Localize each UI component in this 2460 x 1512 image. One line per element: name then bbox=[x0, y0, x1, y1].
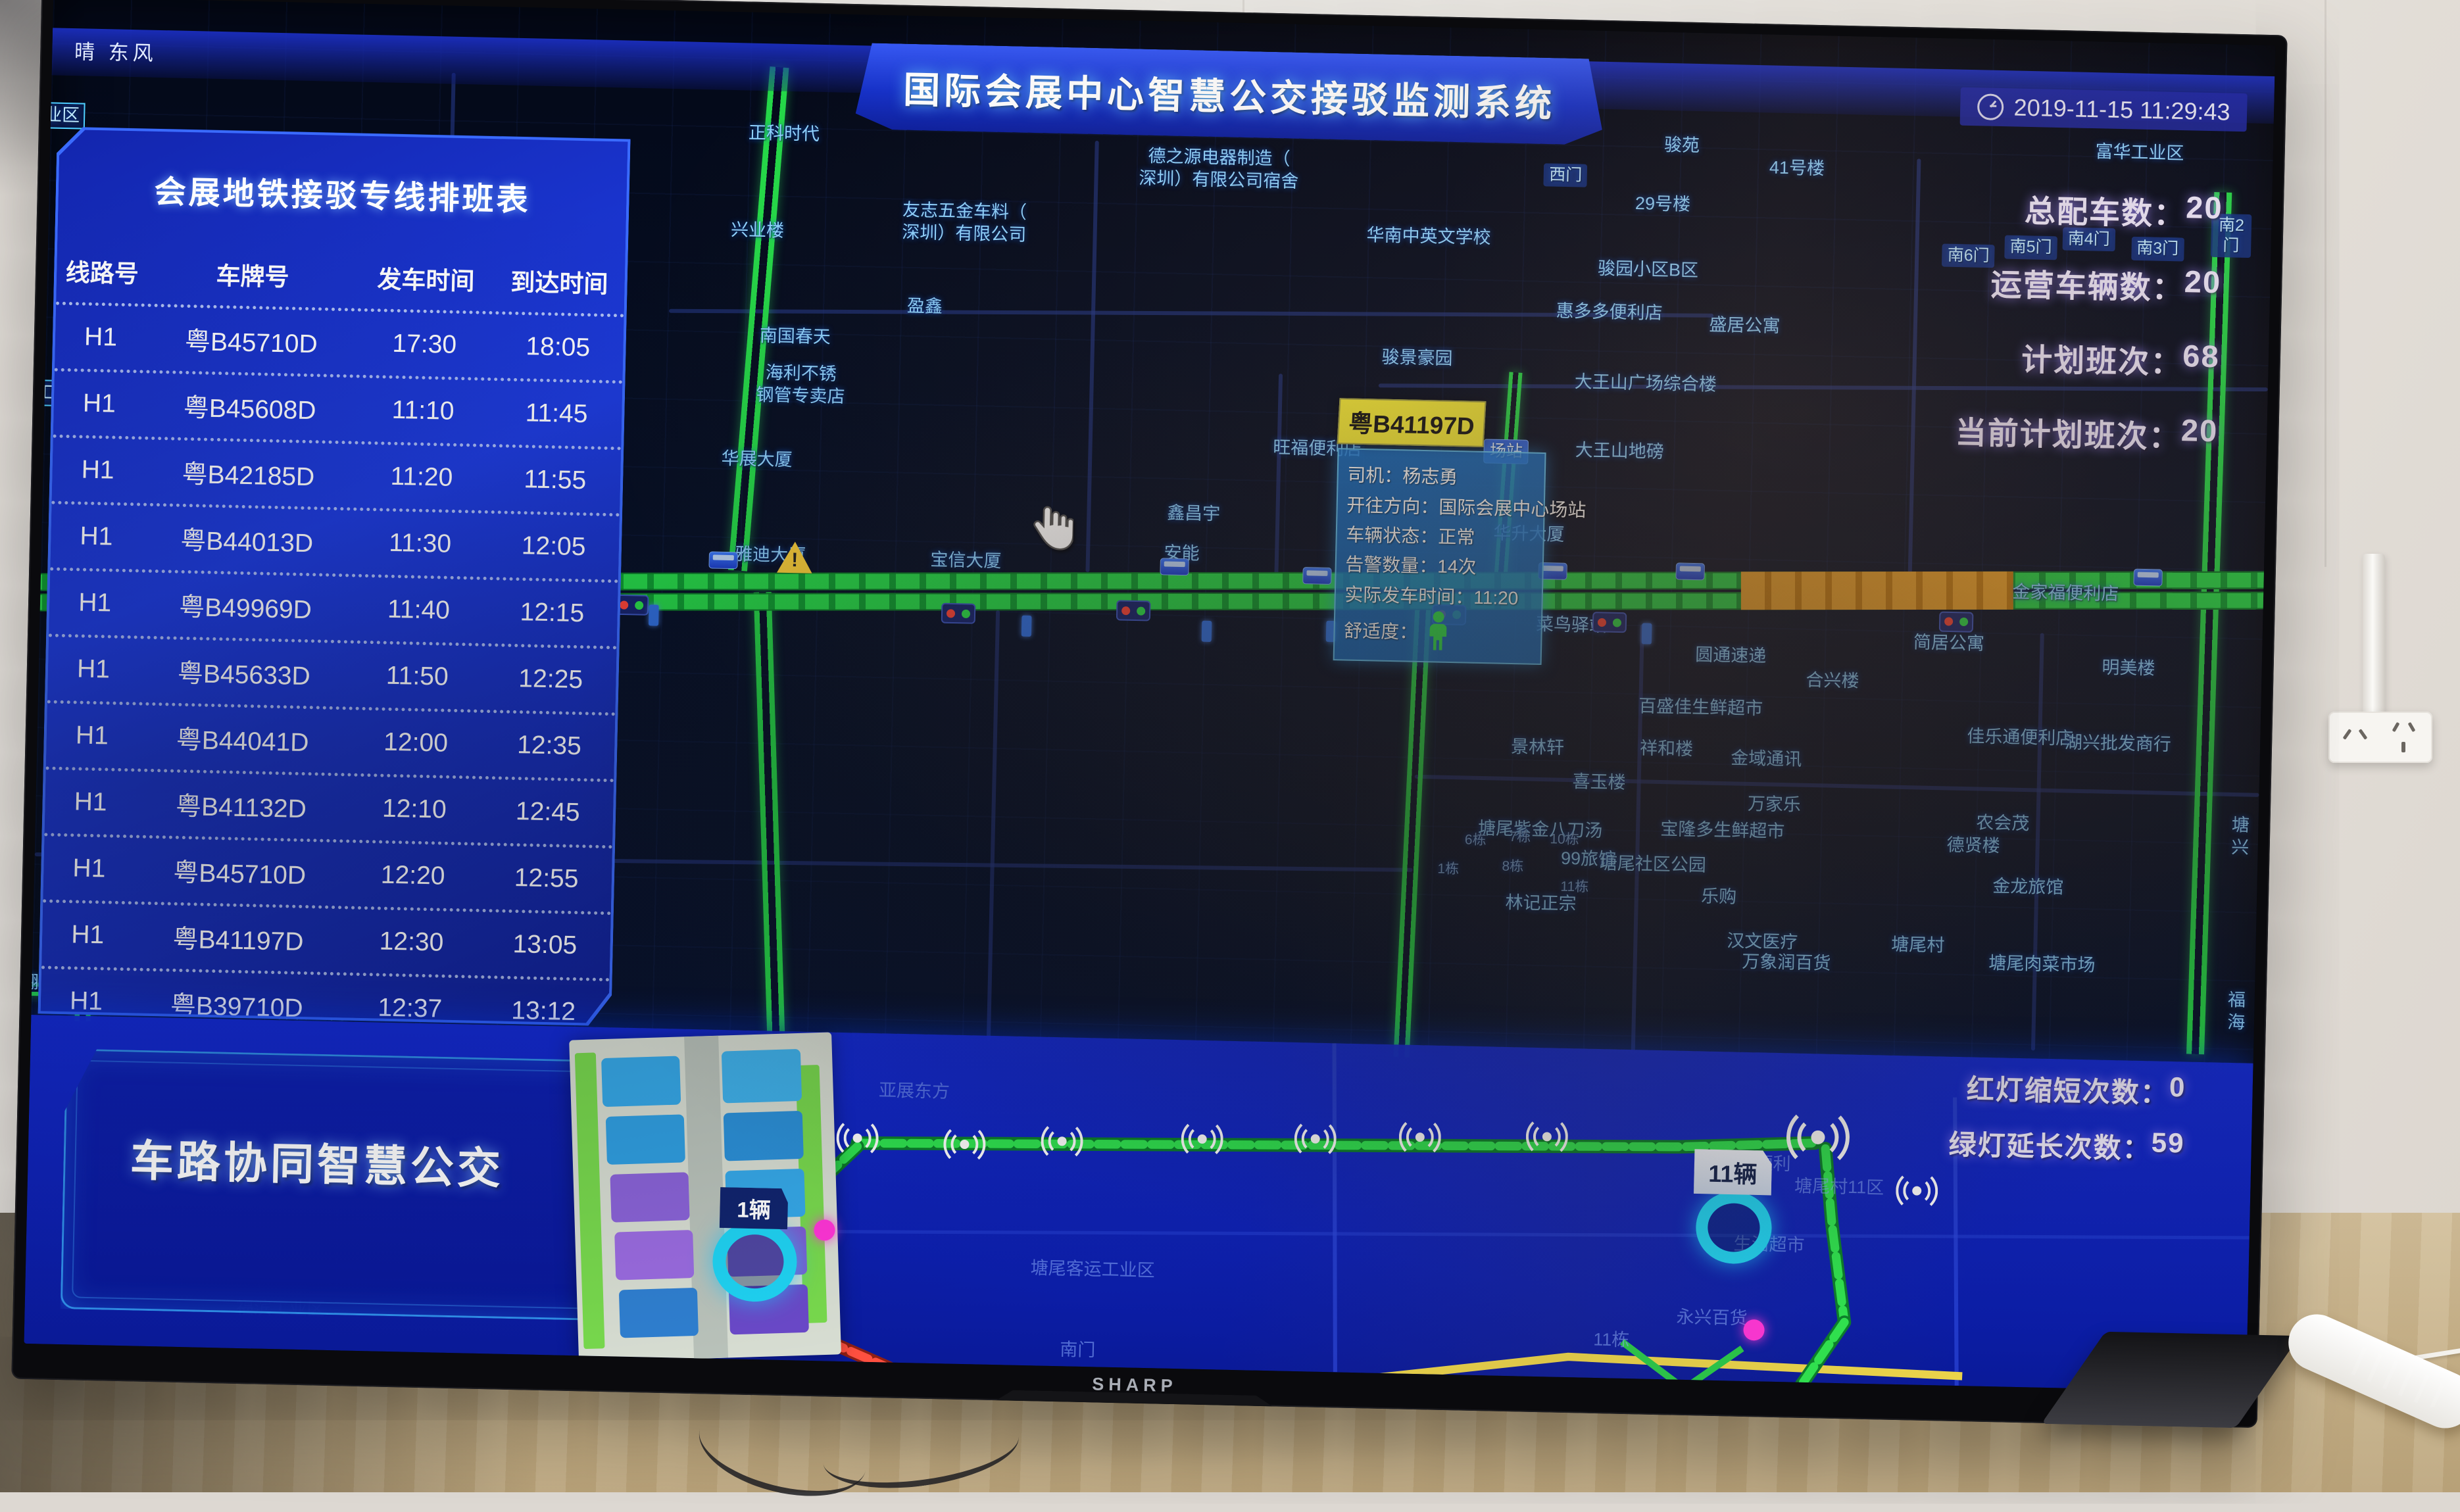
map-label: 万象润百货 bbox=[1742, 951, 1831, 975]
map-label: 福海 bbox=[2227, 990, 2246, 1035]
departure-cell: 12:20 bbox=[345, 860, 481, 892]
line-cell: H1 bbox=[42, 919, 134, 950]
map-label: 德贤楼 bbox=[1946, 834, 2000, 858]
table-row: H1 粤B49969D 11:40 12:15 bbox=[49, 570, 618, 649]
table-row: H1 粤B41132D 12:10 12:45 bbox=[44, 769, 614, 848]
map-label: 大王山广场综合楼 bbox=[1574, 371, 1717, 396]
stat-line: 计划班次：68 bbox=[1957, 333, 2221, 384]
arrival-cell: 18:05 bbox=[492, 331, 624, 363]
popup-value: 正常 bbox=[1438, 527, 1475, 548]
map-label: 29号楼 bbox=[1635, 193, 1691, 216]
map-label: 农会茂 bbox=[1976, 812, 2030, 836]
v2x-label-layer: 亚展东方吉叶便利塘尾村11区生活超市塘尾客运工业区永兴百货南门11栋 bbox=[24, 1015, 2253, 1392]
tv-frame: 业区正科时代友志五金车料（ 深圳）有限公司德之源电器制造（ 深圳）有限公司宿舍华… bbox=[11, 0, 2287, 1428]
popup-label: 舒适度 bbox=[1344, 621, 1400, 643]
map-label: 41号楼 bbox=[1769, 157, 1825, 180]
map-label: 德之源电器制造（ 深圳）有限公司宿舍 bbox=[1139, 145, 1299, 193]
map-label: 骏景豪园 bbox=[1381, 347, 1453, 370]
map-label: 6栋 bbox=[1465, 831, 1487, 849]
stat-line: 红灯缩短次数：0 bbox=[1950, 1067, 2186, 1112]
map-label: 大王山地磅 bbox=[1575, 439, 1664, 464]
map-label: 万家乐 bbox=[1747, 793, 1801, 817]
table-row: H1 粤B45710D 17:30 18:05 bbox=[55, 305, 624, 383]
map-label: 8栋 bbox=[1502, 858, 1523, 875]
col-plate: 车牌号 bbox=[147, 254, 358, 294]
table-row: H1 粤B42185D 11:20 11:55 bbox=[51, 437, 621, 516]
departure-cell: 12:10 bbox=[346, 793, 483, 825]
departure-cell: 12:30 bbox=[343, 926, 480, 958]
arrival-cell: 13:12 bbox=[478, 995, 609, 1023]
arrival-cell: 13:05 bbox=[480, 929, 611, 960]
table-row: H1 粤B45633D 11:50 12:25 bbox=[47, 637, 617, 716]
line-cell: H1 bbox=[48, 654, 139, 685]
map-label: 喜玉楼 bbox=[1572, 771, 1626, 794]
map-label: 乐购 bbox=[1701, 885, 1737, 908]
plate-badge[interactable]: 粤B41197D bbox=[1337, 398, 1486, 447]
map-label: 金家福便利店 bbox=[2012, 581, 2119, 605]
map-label: 塘尾社区公园 bbox=[1600, 852, 1707, 877]
map-label: 塘尾村11区 bbox=[1794, 1171, 1884, 1199]
map-label: 简居公寓 bbox=[1913, 631, 1985, 655]
plate-cell: 粤B45608D bbox=[144, 386, 355, 427]
map-label: 兴业楼 bbox=[731, 219, 785, 243]
map-label: 菜鸟驿站 bbox=[1536, 614, 1608, 637]
table-row: H1 粤B45710D 12:20 12:55 bbox=[43, 836, 612, 915]
col-arrival: 到达时间 bbox=[494, 262, 626, 300]
popup-row: 司机：杨志勇 bbox=[1347, 460, 1536, 495]
plate-cell: 粤B41132D bbox=[135, 785, 347, 826]
map-label: 1栋 bbox=[1437, 860, 1459, 878]
schedule-body: H1 粤B45710D 17:30 18:05 H1 粤B45608D 11:1… bbox=[41, 305, 624, 1023]
map-label: 合兴楼 bbox=[1806, 670, 1859, 693]
map-label: 惠多多便利店 bbox=[1556, 301, 1663, 325]
departure-cell: 11:30 bbox=[352, 527, 489, 560]
map-label: 湖兴批发商行 bbox=[2065, 731, 2172, 756]
departure-cell: 11:50 bbox=[349, 660, 485, 693]
plate-cell: 粤B45633D bbox=[139, 652, 350, 693]
popup-row: 开往方向：国际会展中心场站 bbox=[1346, 490, 1535, 524]
power-outlet bbox=[2328, 712, 2432, 763]
arrival-cell: 12:45 bbox=[482, 796, 614, 828]
map-label: 亚展东方 bbox=[879, 1076, 950, 1103]
map-label: 10栋 bbox=[1550, 831, 1579, 848]
timestamp: 2019-11-15 11:29:43 bbox=[1959, 87, 2248, 132]
popup-row: 车辆状态：正常 bbox=[1346, 520, 1535, 554]
stat-line: 绿灯延长次数：59 bbox=[1948, 1123, 2185, 1168]
stat-label: 总配车数 bbox=[2025, 185, 2154, 233]
plate-cell: 粤B49969D bbox=[140, 585, 351, 627]
map-label: 华展大厦 bbox=[721, 448, 793, 472]
line-cell: H1 bbox=[45, 787, 136, 817]
map-label: 佳乐通便利店 bbox=[1967, 725, 2074, 750]
map-label: 祥和楼 bbox=[1640, 737, 1694, 761]
hand-cursor-icon bbox=[1031, 503, 1074, 553]
popup-value: 11:20 bbox=[1473, 587, 1519, 608]
departure-cell: 11:20 bbox=[353, 461, 490, 493]
stat-value: 68 bbox=[2182, 337, 2221, 383]
popup-label: 实际发车时间 bbox=[1344, 584, 1456, 607]
popup-label: 司机 bbox=[1347, 465, 1385, 486]
arrival-cell: 12:25 bbox=[485, 664, 616, 695]
map-label: 骏苑 bbox=[1664, 134, 1700, 157]
stat-line: 运营车辆数：20 bbox=[1958, 258, 2222, 310]
map-label: 景林轩 bbox=[1511, 736, 1565, 760]
datetime-value: 2019-11-15 11:29:43 bbox=[2013, 93, 2230, 126]
line-cell: H1 bbox=[52, 454, 143, 485]
plate-cell: 粤B44013D bbox=[141, 519, 353, 560]
map-label: 雅迪大厦 bbox=[735, 544, 806, 568]
table-row: H1 粤B44013D 11:30 12:05 bbox=[50, 504, 620, 583]
departure-cell: 11:10 bbox=[355, 395, 491, 427]
line-cell: H1 bbox=[49, 587, 141, 618]
stat-value: 20 bbox=[2185, 189, 2223, 235]
schedule-title: 会展地铁接驳专线排班表 bbox=[58, 163, 627, 222]
arrival-cell: 11:45 bbox=[491, 398, 622, 429]
popup-row: 舒适度： bbox=[1344, 610, 1533, 653]
map-label: 塘尾客运工业区 bbox=[1030, 1253, 1155, 1281]
map-label: 海利不锈 钢管专卖店 bbox=[756, 362, 845, 408]
plate-cell: 粤B45710D bbox=[134, 851, 345, 892]
map-label: 塘尾村 bbox=[1891, 934, 1945, 958]
col-line: 线路号 bbox=[57, 252, 148, 289]
plate-cell: 粤B44041D bbox=[137, 718, 348, 760]
popup-value: 14次 bbox=[1437, 556, 1477, 577]
page-title: 国际会展中心智慧公交接驳监测系统 bbox=[902, 61, 1556, 128]
map-label: 友志五金车料（ 深圳）有限公司 bbox=[902, 199, 1027, 247]
cable-conduit bbox=[2363, 554, 2385, 730]
plate-cell: 粤B41197D bbox=[133, 917, 344, 959]
popup-label: 开往方向 bbox=[1346, 495, 1421, 516]
map-label: 安能 bbox=[1164, 543, 1200, 566]
departure-cell: 11:40 bbox=[350, 594, 487, 626]
line-cell: H1 bbox=[41, 986, 132, 1017]
arrival-cell: 12:55 bbox=[481, 862, 612, 894]
popup-row: 实际发车时间：11:20 bbox=[1344, 579, 1533, 614]
popup-value: 国际会展中心场站 bbox=[1439, 497, 1587, 520]
monitoring-dashboard-screen: 业区正科时代友志五金车料（ 深圳）有限公司德之源电器制造（ 深圳）有限公司宿舍华… bbox=[24, 0, 2275, 1392]
table-row: H1 粤B45608D 11:10 11:45 bbox=[53, 371, 623, 450]
map-label: 林记正宗 bbox=[1505, 892, 1577, 915]
stat-label: 绿灯延长次数 bbox=[1948, 1123, 2123, 1167]
clock-icon bbox=[1977, 93, 2004, 120]
map-label: 南国春天 bbox=[760, 325, 831, 349]
map-label: 华南中英文学校 bbox=[1366, 225, 1491, 250]
wall-seam bbox=[2325, 0, 2326, 567]
vehicle-info-popup[interactable]: 粤B41197D 司机：杨志勇 开往方向：国际会展中心场站 车辆状态：正常 告警… bbox=[1333, 398, 1547, 665]
v2x-panel: 车路协同智慧公交 亚展东方吉叶便利塘尾村11区生活超市塘尾客运工业区永兴百货南门… bbox=[24, 1015, 2253, 1392]
map-label: 西门 bbox=[1544, 163, 1588, 187]
plate-cell: 粤B45710D bbox=[146, 320, 357, 361]
col-departure: 发车时间 bbox=[357, 258, 494, 297]
map-label: 鑫昌宇 bbox=[1167, 502, 1221, 525]
table-row: H1 粤B41197D 12:30 13:05 bbox=[41, 902, 611, 981]
comfort-person-icon bbox=[1428, 611, 1448, 651]
map-label: 永兴百货 bbox=[1676, 1302, 1748, 1329]
stat-value: 20 bbox=[2184, 263, 2222, 309]
map-label: 金龙旅馆 bbox=[1992, 875, 2064, 899]
line-cell: H1 bbox=[55, 322, 147, 353]
arrival-cell: 11:55 bbox=[489, 464, 621, 496]
map-label: 11栋 bbox=[1593, 1325, 1630, 1351]
map-label: 百盛佳生鲜超市 bbox=[1638, 695, 1763, 720]
map-label: 圆通速递 bbox=[1695, 644, 1767, 668]
stat-value: 0 bbox=[2169, 1071, 2186, 1112]
line-cell: H1 bbox=[53, 388, 145, 419]
map-label: 11栋 bbox=[1560, 878, 1588, 896]
stat-line: 当前计划班次：20 bbox=[1955, 407, 2219, 458]
popup-value: 杨志勇 bbox=[1402, 466, 1458, 488]
weather-label: 晴 东风 bbox=[74, 35, 158, 66]
stat-value: 20 bbox=[2180, 412, 2219, 458]
popup-label: 告警数量 bbox=[1345, 554, 1419, 576]
line-cell: H1 bbox=[46, 720, 137, 751]
schedule-panel: 会展地铁接驳专线排班表 线路号 车牌号 发车时间 到达时间 H1 粤B45710… bbox=[38, 126, 631, 1026]
map-label: 盈鑫 bbox=[907, 295, 943, 318]
vehicle-count-badge-station[interactable]: 1辆 bbox=[720, 1187, 789, 1229]
stat-label: 红灯缩短次数 bbox=[1966, 1067, 2140, 1111]
map-label: 7栋 bbox=[1509, 829, 1531, 846]
map-label: 盛居公寓 bbox=[1709, 314, 1781, 338]
stat-value: 59 bbox=[2151, 1127, 2185, 1168]
map-label: 骏园小区B区 bbox=[1598, 258, 1699, 282]
map-label: 宝隆多生鲜超市 bbox=[1660, 819, 1785, 844]
popup-label: 车辆状态 bbox=[1346, 524, 1420, 546]
schedule-header-row: 线路号 车牌号 发车时间 到达时间 bbox=[56, 238, 626, 317]
map-label: 正科时代 bbox=[749, 122, 820, 146]
stat-label: 运营车辆数 bbox=[1990, 259, 2152, 308]
departure-cell: 12:00 bbox=[347, 727, 484, 759]
stat-label: 计划班次 bbox=[2021, 334, 2151, 382]
map-label: 宝信大厦 bbox=[930, 549, 1002, 573]
fleet-stats: 总配车数：20 运营车辆数：20 计划班次：68 当前计划班次：20 bbox=[1954, 184, 2223, 487]
line-cell: H1 bbox=[51, 521, 142, 552]
map-label: 塘尾紫金八刀汤 bbox=[1478, 817, 1603, 842]
map-label: 塘尾肉菜市场 bbox=[1988, 952, 2096, 977]
map-label: 业区 bbox=[39, 102, 86, 129]
stat-line: 总配车数：20 bbox=[1960, 184, 2224, 235]
map-label: 南门 bbox=[1060, 1334, 1096, 1361]
departure-cell: 12:37 bbox=[341, 992, 478, 1023]
vehicle-count-badge-route[interactable]: 11辆 bbox=[1694, 1149, 1773, 1196]
map-label: 富华工业区 bbox=[2095, 141, 2184, 165]
line-cell: H1 bbox=[43, 853, 135, 884]
map-label: 生活超市 bbox=[1733, 1229, 1805, 1256]
departure-cell: 17:30 bbox=[356, 328, 493, 360]
arrival-cell: 12:05 bbox=[488, 531, 620, 562]
signal-priority-stats: 红灯缩短次数：0 绿灯延长次数：59 bbox=[1948, 1067, 2186, 1184]
v2x-title: 车路协同智慧公交 bbox=[130, 1126, 504, 1197]
arrival-cell: 12:15 bbox=[487, 597, 618, 629]
header-banner: 国际会展中心智慧公交接驳监测系统 bbox=[855, 43, 1604, 145]
popup-row: 告警数量：14次 bbox=[1345, 550, 1534, 584]
map-label: 塘兴 bbox=[2231, 814, 2250, 859]
map-label: 明美楼 bbox=[2102, 657, 2155, 681]
map-label: 金域通讯 bbox=[1731, 747, 1802, 771]
map-label: 汉文医疗 bbox=[1727, 931, 1798, 954]
arrival-cell: 12:35 bbox=[483, 730, 615, 762]
table-row: H1 粤B44041D 12:00 12:35 bbox=[46, 703, 616, 782]
plate-cell: 粤B42185D bbox=[143, 452, 354, 494]
vehicle-info-box: 司机：杨志勇 开往方向：国际会展中心场站 车辆状态：正常 告警数量：14次 实际… bbox=[1333, 448, 1546, 665]
stat-label: 当前计划班次 bbox=[1955, 407, 2149, 456]
